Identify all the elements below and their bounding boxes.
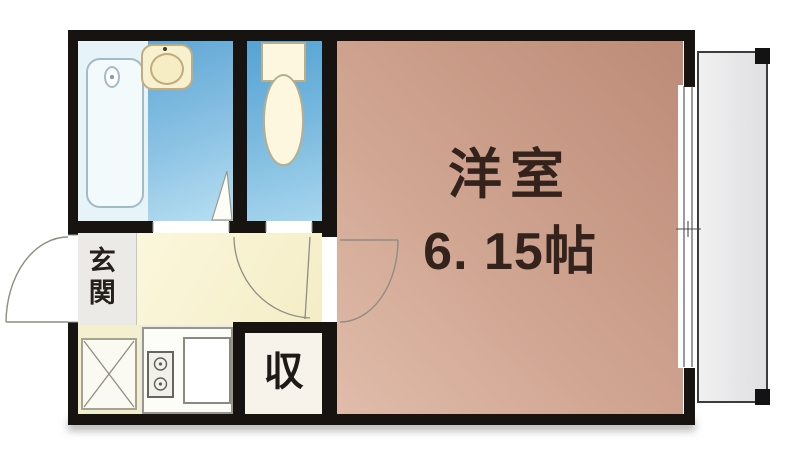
bathtub-drain-icon [104, 66, 120, 88]
wall-left-lower [68, 322, 78, 425]
wall-bath-bottom-a [68, 221, 153, 233]
main-room-size-label: 6. 15帖 [360, 224, 660, 281]
wall-bath-bottom-c [312, 221, 337, 233]
entrance-label: 玄関 [84, 246, 114, 310]
sink-bowl-icon [150, 53, 184, 85]
main-room-door-opening [322, 237, 337, 322]
main-room-label: 洋室 [360, 146, 660, 205]
wall-kitchen-closet [233, 322, 245, 425]
wall-left-upper [68, 30, 78, 235]
wall-closet-top [233, 322, 337, 333]
kitchen-counter-icon [183, 337, 231, 404]
floorplan-page: { "plan": { "type": "apartment-floor-pla… [0, 0, 800, 463]
entrance-door-swing [6, 237, 68, 322]
balcony [697, 51, 768, 403]
faucet-icon [163, 47, 167, 51]
hallway-floor [137, 233, 322, 325]
wall-bath-bottom-b [229, 221, 266, 233]
wall-right-bottom-stub [684, 368, 695, 425]
balcony-corner-post-top [755, 48, 770, 64]
balcony-corner-post-bottom [755, 389, 770, 405]
window-opening [678, 85, 697, 368]
wall-bottom [68, 414, 695, 425]
stove-icon [147, 351, 174, 398]
wall-top [68, 30, 695, 41]
wall-right-top-stub [684, 30, 695, 87]
washing-machine-pan-icon [81, 338, 137, 410]
closet-label: 収 [245, 350, 322, 394]
wall-bath-toilet [233, 30, 247, 233]
toilet-icon [263, 74, 304, 166]
